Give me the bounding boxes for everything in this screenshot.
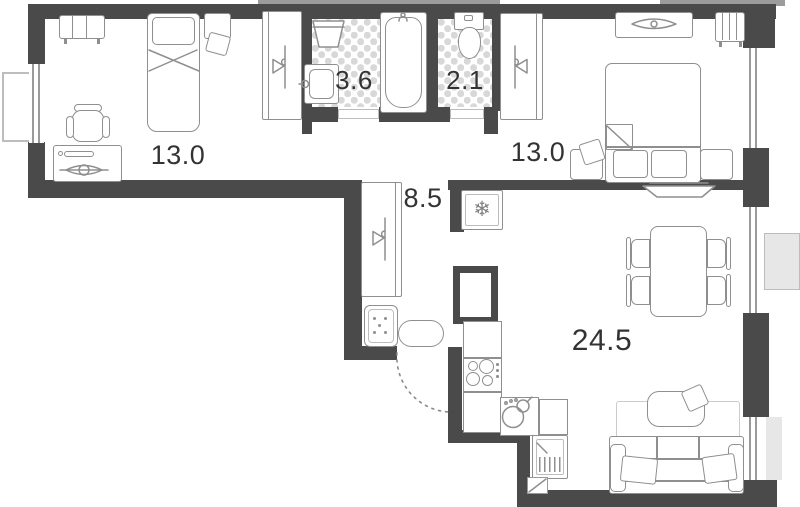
bookshelf-divider — [736, 13, 737, 40]
bookshelf-divider — [722, 13, 723, 40]
vent-box — [527, 477, 548, 494]
wall-right-bottom — [743, 480, 777, 507]
wall-hallway-south — [344, 346, 397, 360]
toilet-door-threshold — [450, 109, 484, 119]
wall-bath-south-a — [312, 107, 338, 122]
desk-chair-armrest — [66, 116, 74, 138]
window-right-sofa — [745, 417, 761, 480]
stove-burner — [466, 372, 480, 386]
stool-dot — [378, 324, 381, 327]
desk-item — [58, 151, 63, 156]
area-label-bathroom: 3.6 — [326, 67, 382, 93]
kitchen-counter-right — [539, 399, 568, 435]
dresser — [615, 12, 693, 38]
stool-dot — [373, 331, 376, 334]
area-label-bedroom-right: 13.0 — [500, 139, 576, 166]
wall-right-top — [743, 4, 775, 48]
wall-left-upper — [28, 4, 45, 64]
stove-burner — [468, 361, 478, 371]
stool-dot — [384, 331, 387, 334]
sofa-cushion-divider — [698, 437, 700, 458]
wall-bottom-left — [28, 180, 362, 198]
area-label-toilet: 2.1 — [438, 67, 492, 93]
bookshelf — [59, 15, 105, 39]
stove-knob — [496, 369, 499, 372]
dining-chair-seat — [631, 276, 650, 305]
desk-chair-seat — [72, 110, 104, 142]
bookshelf-leg — [97, 39, 100, 44]
dishwasher-grill — [539, 457, 561, 472]
window-right-dining — [745, 207, 761, 313]
bookshelf-leg — [719, 42, 722, 47]
dining-table — [650, 226, 707, 317]
bookshelf-divider — [72, 16, 73, 38]
exterior-slab-right — [766, 417, 782, 480]
hanger-icon — [368, 216, 394, 262]
toilet-bowl — [458, 27, 481, 59]
hanger-icon — [506, 44, 532, 90]
window-right-bedroom — [745, 48, 761, 148]
toilet-flush-button — [464, 15, 473, 21]
wardrobe-door-line — [536, 14, 537, 119]
hallway-stool-inner — [368, 309, 394, 343]
bathroom-door-threshold — [338, 109, 379, 119]
counter-divider — [464, 357, 501, 359]
sofa-pillow — [701, 453, 737, 484]
wall-right-mid2 — [743, 313, 769, 417]
dining-chair-back — [726, 237, 731, 270]
dining-chair-back — [726, 274, 731, 307]
snowflake-icon: ❄ — [465, 199, 499, 220]
stool-dot — [373, 317, 376, 320]
wall-hallway-west — [344, 180, 362, 360]
hallway-pouf — [398, 320, 444, 347]
area-label-hallway: 8.5 — [391, 185, 455, 212]
bedside-rug — [205, 31, 231, 56]
kitchen-sink-cabinet — [500, 397, 539, 436]
counter-divider — [464, 391, 501, 393]
balcony-right — [764, 233, 800, 290]
sofa-pillow — [620, 455, 659, 485]
desk-pencil-tray — [64, 151, 94, 157]
wall-kitchen-west-lower — [448, 347, 462, 443]
floor-plan: ❄ — [0, 0, 800, 507]
stove-burner — [479, 359, 494, 374]
dining-chair-seat — [707, 239, 726, 268]
wall-bedroom2-south — [448, 180, 748, 190]
bed-pillow — [152, 17, 195, 45]
sofa-cushion-divider — [656, 437, 658, 458]
stove-knob — [496, 375, 499, 378]
bookshelf-divider — [729, 13, 730, 40]
area-label-bedroom-left: 13.0 — [140, 142, 216, 169]
dining-chair-seat — [707, 276, 726, 305]
desk-chair-armrest — [102, 116, 110, 138]
nightstand — [700, 149, 733, 180]
hanger-icon — [268, 44, 294, 90]
stool-dot — [384, 317, 387, 320]
stove-knob — [496, 363, 499, 366]
stove-burner — [482, 375, 493, 386]
dining-chair-seat — [631, 239, 650, 268]
bookshelf-leg — [64, 39, 67, 44]
bookshelf-leg — [739, 42, 742, 47]
wall-right-mid1 — [743, 148, 769, 207]
area-label-kitchen-living: 24.5 — [552, 326, 652, 356]
entrance-door-swing-arc — [397, 353, 449, 412]
bathtub-basin — [385, 17, 422, 108]
vent-shaft — [453, 266, 498, 324]
wall-toilet-stub — [484, 107, 498, 134]
bed-pillow — [651, 150, 687, 178]
window-left — [29, 64, 44, 143]
bookshelf-divider — [86, 16, 87, 38]
blanket-fold — [606, 124, 633, 150]
wall-bath-toilet-divider — [427, 4, 438, 111]
bed-pillow — [613, 150, 648, 178]
